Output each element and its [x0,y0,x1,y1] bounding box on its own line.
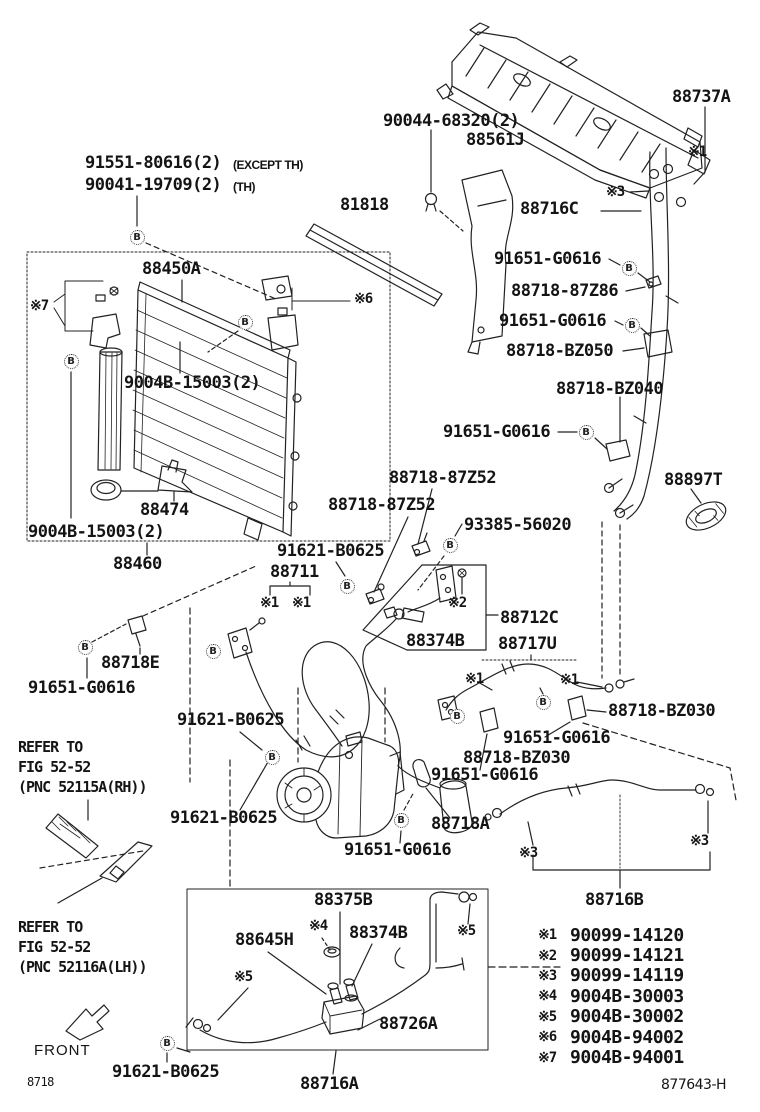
part-label: 91651-G0616 [28,680,135,697]
part-label: 90041-19709(2) [85,177,221,194]
part-label: ※1 [292,596,310,610]
part-label: 88716B [585,892,643,909]
part-label: 91621-B0625 [277,543,384,560]
part-label: ※3 [690,834,708,848]
part-label: 91651-G0616 [499,313,606,330]
part-label: 9004B-15003(2) [124,375,260,392]
part-label: ※2 [448,596,466,610]
part-label: ※4 [309,919,327,933]
part-label: 8718 [27,1076,54,1088]
part-label: ※5 [457,924,475,938]
bolt-marker-b: B [206,644,221,659]
legend-ref: ※6 [538,1029,564,1045]
bolt-marker-b: B [579,425,594,440]
legend-part-number: 9004B-94001 [570,1047,684,1068]
part-label: ※1 [560,673,578,687]
bolt-marker-b: B [450,709,465,724]
part-label: REFER TO [18,920,82,935]
part-label: 91651-G0616 [443,424,550,441]
bolt-marker-b: B [443,538,458,553]
part-label: ※7 [30,299,48,313]
part-label: FIG 52-52 [18,940,90,955]
part-label: 88716A [300,1076,358,1093]
part-label: 88716C [520,201,578,218]
part-label: 88718E [101,655,159,672]
legend-part-number: 9004B-94002 [570,1027,684,1048]
legend-part-number: 90099-14121 [570,945,684,966]
part-label: 91651-G0616 [431,767,538,784]
legend-ref: ※4 [538,988,564,1004]
part-label: 88645H [235,932,293,949]
bolt-marker-b: B [340,579,355,594]
bottom-pipe-box-art [167,889,560,1074]
bolt-marker-b: B [160,1036,175,1051]
part-label: ※1 [688,145,706,159]
part-label: 88711 [270,564,319,581]
part-label: 88460 [113,556,162,573]
part-label: 88718-BZ040 [556,381,663,398]
legend-ref: ※2 [538,948,564,964]
part-label: 877643-H [661,1078,726,1092]
part-label: 88726A [379,1016,437,1033]
part-label: ※1 [260,596,278,610]
bolt-marker-b: B [64,354,79,369]
part-label: 91651-G0616 [494,251,601,268]
legend-ref: ※5 [538,1009,564,1025]
part-label: 88718-87Z86 [511,283,618,300]
legend-ref: ※1 [538,927,564,943]
legend-part-number: 9004B-30002 [570,1006,684,1027]
legend-row: ※49004B-30003 [538,986,684,1006]
part-label: FIG 52-52 [18,760,90,775]
bolt-marker-b: B [536,695,551,710]
legend-row: ※390099-14119 [538,966,684,986]
part-label: 88374B [406,633,464,650]
front-arrow-icon [66,1005,109,1040]
bolt-marker-b: B [622,261,637,276]
part-label: 88718-BZ050 [506,343,613,360]
part-label: 91651-G0616 [503,730,610,747]
part-label: 88717U [498,636,556,653]
legend-row: ※290099-14121 [538,945,684,965]
part-label: 88450A [142,261,200,278]
part-label: 88375B [314,892,372,909]
part-label: ※3 [606,185,624,199]
legend-part-number: 9004B-30003 [570,986,684,1007]
part-label: 88561J [466,132,524,149]
part-label: 88718-BZ030 [608,703,715,720]
part-label: (EXCEPT TH) [233,159,303,171]
part-label: 90044-68320(2) [383,113,519,130]
part-label: 88718A [431,816,489,833]
bolt-marker-b: B [78,640,93,655]
part-label: 88737A [672,89,730,106]
part-label: 91621-B0625 [170,810,277,827]
bolt-marker-b: B [625,318,640,333]
legend-part-number: 90099-14119 [570,965,684,986]
bolt-90044-art [426,130,464,231]
substitution-legend: ※190099-14120※290099-14121※390099-14119※… [538,925,684,1068]
legend-row: ※59004B-30002 [538,1007,684,1027]
legend-part-number: 90099-14120 [570,925,684,946]
legend-ref: ※7 [538,1050,564,1066]
part-label: 88712C [500,610,558,627]
part-label: 88897T [664,472,722,489]
seal-81818-art [306,224,442,306]
apron-brackets-art [46,800,152,903]
part-label: FRONT [34,1043,91,1058]
legend-row: ※79004B-94001 [538,1047,684,1067]
part-label: 91621-B0625 [177,712,284,729]
legend-ref: ※3 [538,968,564,984]
part-label: 81818 [340,197,389,214]
part-label: (PNC 52116A(LH)) [18,960,147,975]
part-label: 88374B [349,925,407,942]
part-label: 93385-56020 [464,517,571,534]
bolt-marker-b: B [238,315,253,330]
part-label: 9004B-15003(2) [28,524,164,541]
legend-row: ※69004B-94002 [538,1027,684,1047]
parts-diagram-page: 91551-80616(2)(EXCEPT TH)90041-19709(2)(… [0,0,760,1112]
part-label: (TH) [233,181,255,193]
part-label: (PNC 52115A(RH)) [18,780,147,795]
bolt-marker-b: B [265,750,280,765]
part-label: REFER TO [18,740,82,755]
part-label: 88718-87Z52 [389,470,496,487]
legend-row: ※190099-14120 [538,925,684,945]
part-label: 91621-B0625 [112,1064,219,1081]
part-label: 88474 [140,502,189,519]
part-label: ※5 [234,970,252,984]
part-label: 91551-80616(2) [85,155,221,172]
part-label: 88718-87Z52 [328,497,435,514]
part-label: 91651-G0616 [344,842,451,859]
bolt-marker-b: B [130,230,145,245]
part-label: ※1 [465,672,483,686]
part-label: ※6 [354,292,372,306]
bolt-marker-b: B [394,813,409,828]
part-label: ※3 [519,846,537,860]
